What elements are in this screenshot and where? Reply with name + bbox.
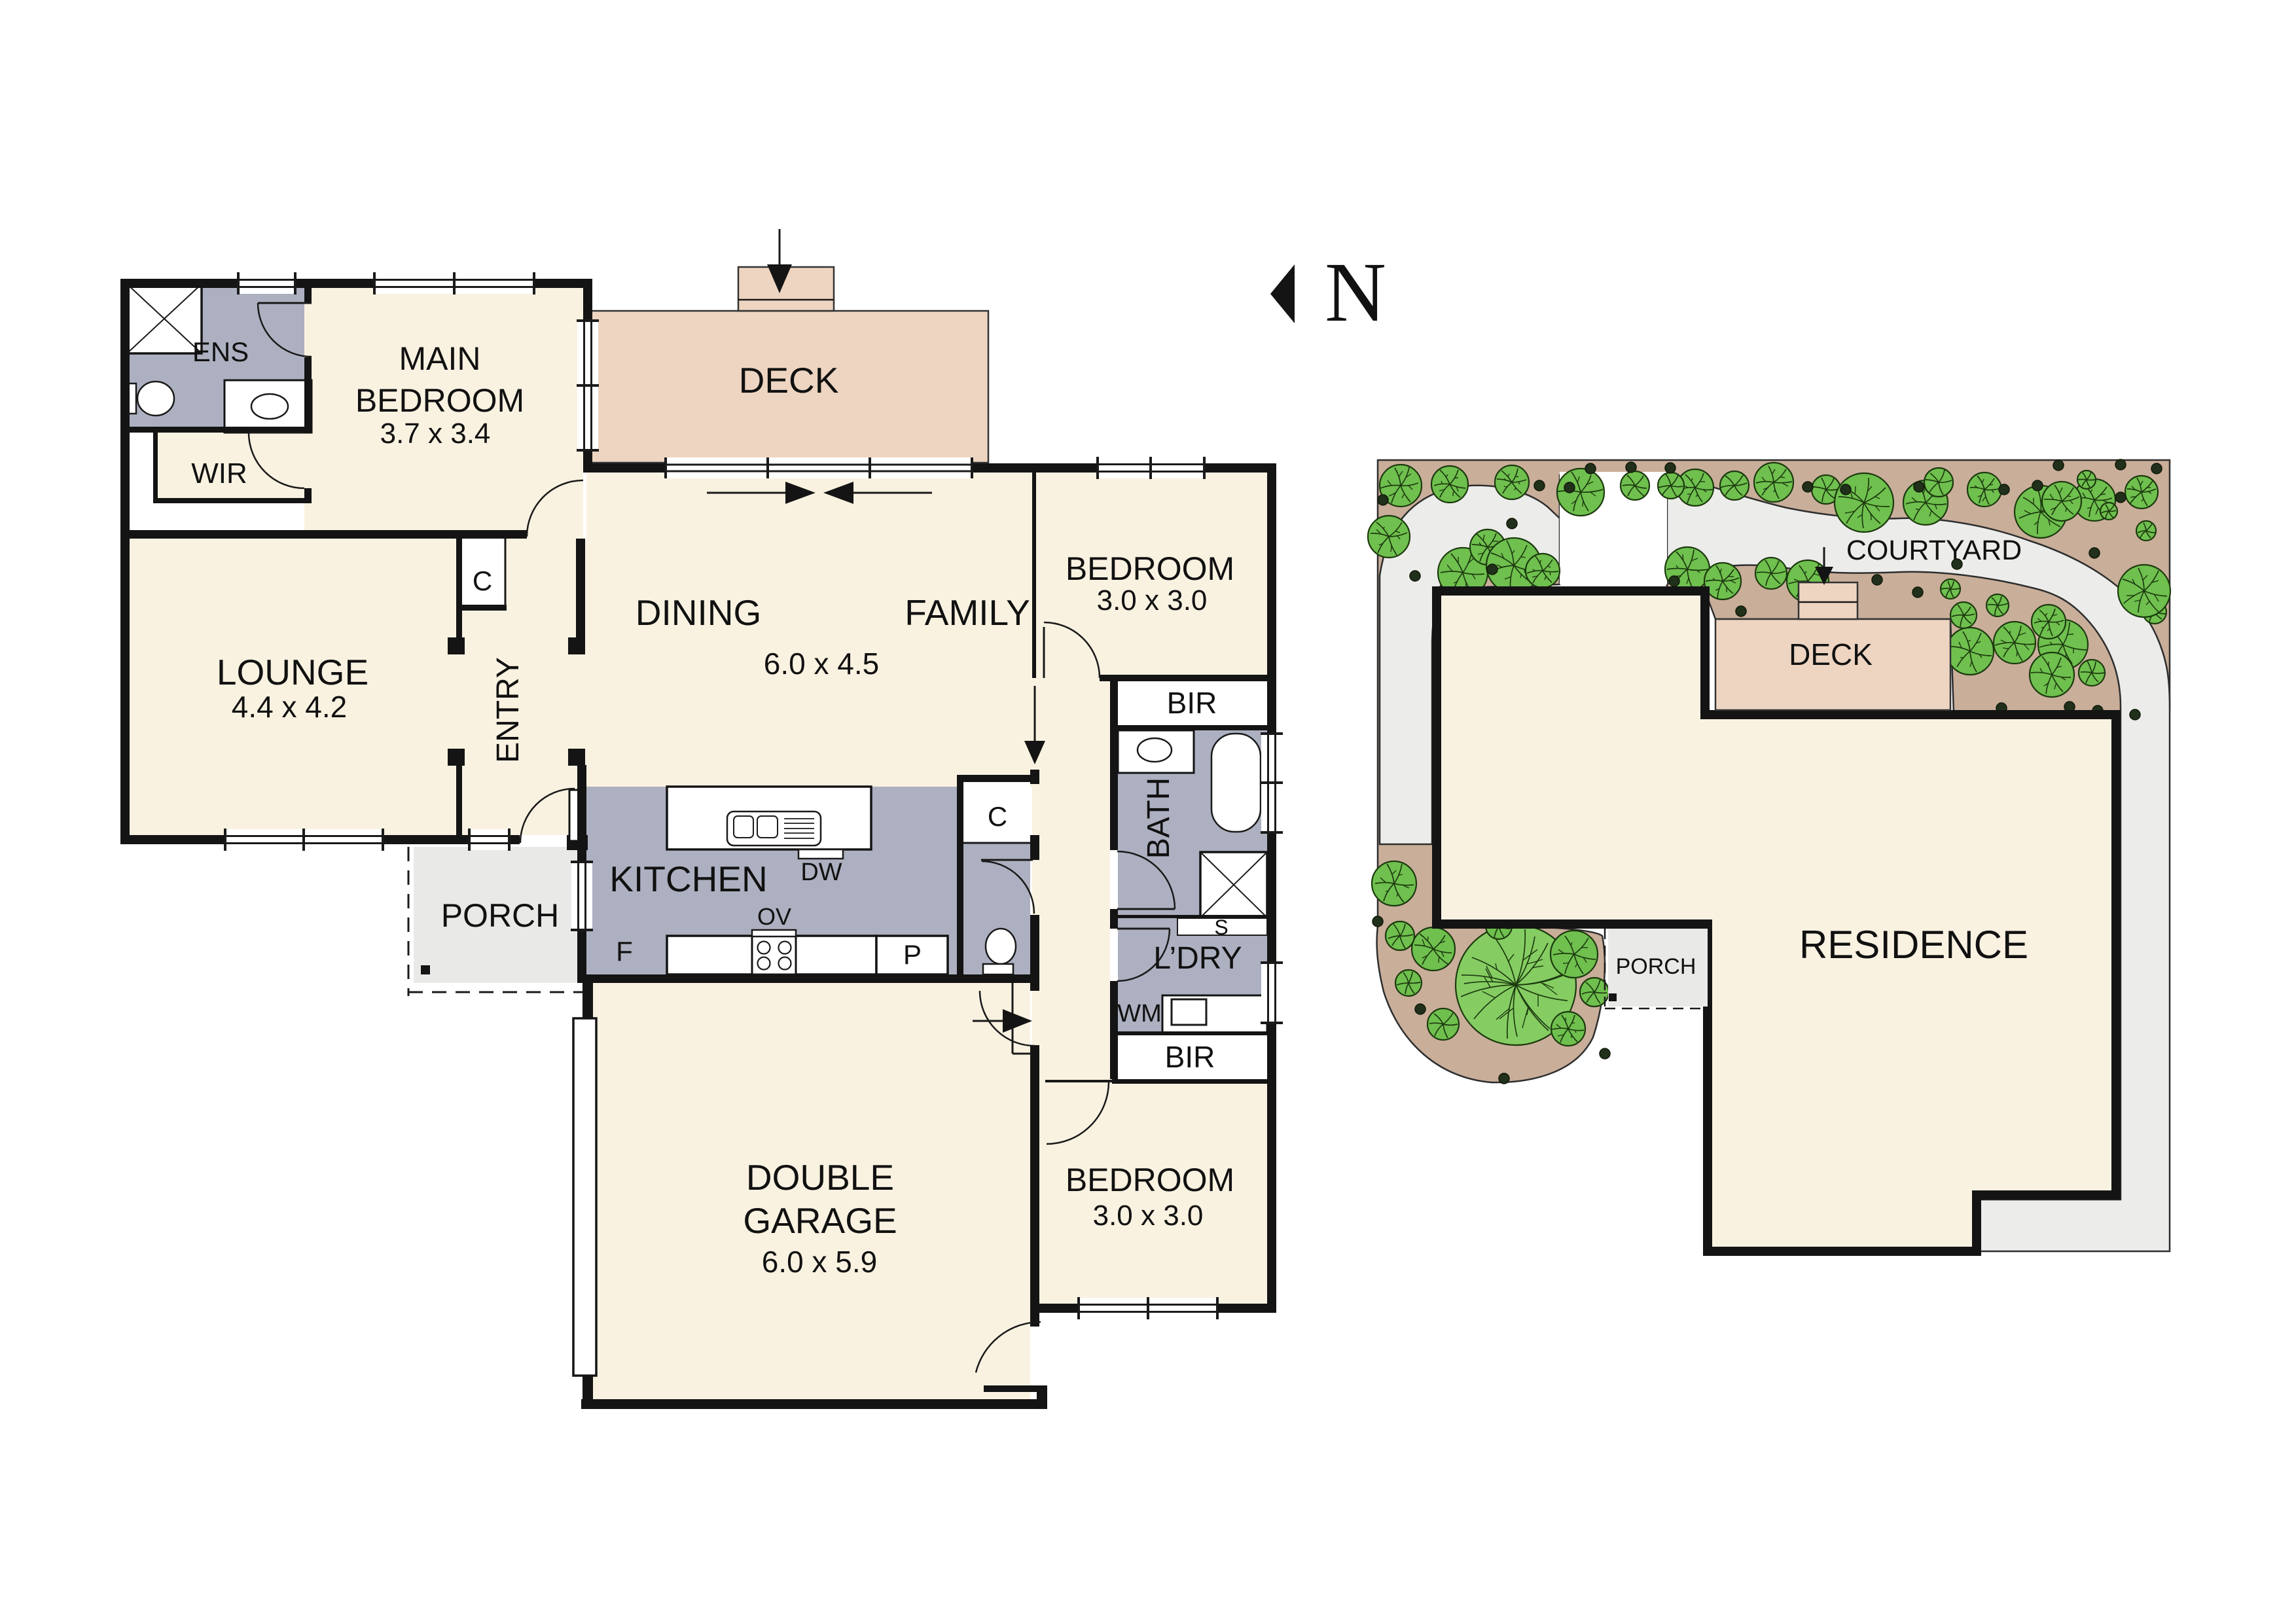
svg-text:BEDROOM: BEDROOM (355, 382, 524, 419)
svg-text:RESIDENCE: RESIDENCE (1799, 923, 2028, 967)
svg-text:3.7 x 3.4: 3.7 x 3.4 (380, 418, 491, 450)
svg-text:GARAGE: GARAGE (743, 1200, 897, 1241)
svg-text:N: N (1325, 245, 1386, 340)
svg-text:DW: DW (800, 859, 842, 886)
svg-text:DOUBLE: DOUBLE (746, 1157, 894, 1198)
svg-text:WIR: WIR (191, 457, 247, 490)
svg-text:3.0 x 3.0: 3.0 x 3.0 (1097, 584, 1208, 616)
svg-text:S: S (1214, 916, 1228, 939)
svg-text:WM: WM (1117, 1000, 1162, 1027)
svg-text:LOUNGE: LOUNGE (217, 652, 368, 692)
svg-text:MAIN: MAIN (399, 340, 481, 377)
svg-text:ENTRY: ENTRY (491, 657, 526, 763)
svg-text:COURTYARD: COURTYARD (1846, 535, 2022, 566)
svg-text:ENS: ENS (192, 336, 249, 367)
svg-text:PORCH: PORCH (1616, 954, 1696, 979)
svg-text:BEDROOM: BEDROOM (1066, 550, 1234, 587)
svg-text:DECK: DECK (739, 360, 839, 401)
svg-text:BATH: BATH (1141, 777, 1176, 859)
svg-text:F: F (616, 936, 633, 967)
svg-text:3.0 x 3.0: 3.0 x 3.0 (1093, 1200, 1204, 1232)
svg-text:BEDROOM: BEDROOM (1066, 1162, 1234, 1198)
svg-text:C: C (988, 801, 1007, 832)
svg-text:FAMILY: FAMILY (905, 592, 1030, 633)
svg-text:BIR: BIR (1165, 1040, 1215, 1074)
svg-text:DINING: DINING (636, 592, 762, 633)
svg-text:PORCH: PORCH (441, 897, 560, 934)
svg-text:BIR: BIR (1167, 686, 1217, 720)
svg-text:OV: OV (757, 903, 791, 930)
svg-text:6.0 x 5.9: 6.0 x 5.9 (762, 1245, 877, 1279)
svg-text:6.0 x 4.5: 6.0 x 4.5 (764, 647, 879, 681)
svg-text:KITCHEN: KITCHEN (609, 859, 767, 899)
svg-text:DECK: DECK (1789, 637, 1873, 671)
svg-text:P: P (903, 939, 922, 970)
svg-text:4.4 x 4.2: 4.4 x 4.2 (232, 690, 347, 724)
svg-text:C: C (473, 565, 492, 596)
